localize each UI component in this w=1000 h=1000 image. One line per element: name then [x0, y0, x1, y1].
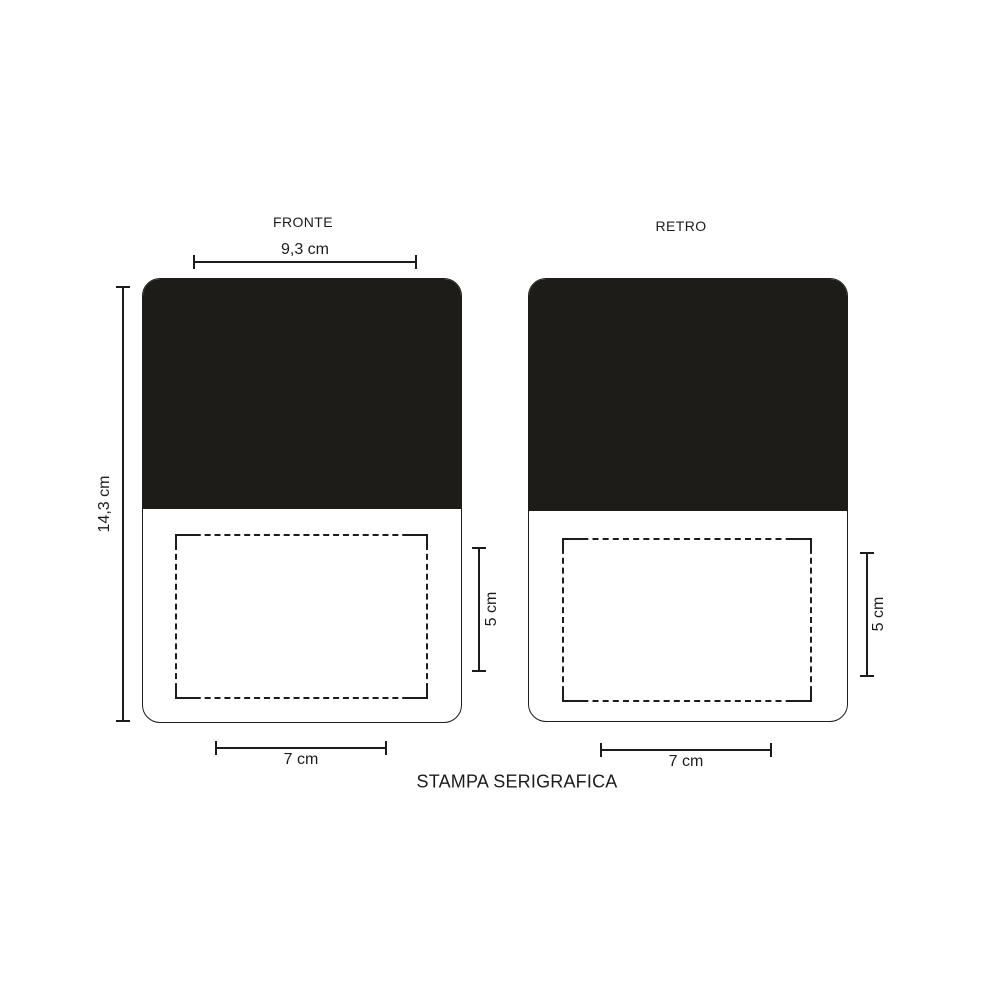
front-overall-height-dimension-line: [116, 286, 130, 722]
crop-corner-icon: [790, 688, 812, 702]
back-print-width-label: 7 cm: [669, 753, 704, 771]
dimension-line: [600, 749, 772, 751]
crop-corner-icon: [175, 685, 197, 699]
front-card-outline: [142, 278, 462, 723]
dimension-tick: [116, 720, 130, 722]
dimension-tick: [770, 743, 772, 757]
front-print-width-label: 7 cm: [284, 751, 319, 769]
print-technique-label: STAMPA SERIGRAFICA: [417, 772, 618, 793]
back-print-area: [562, 538, 812, 702]
dimension-tick: [415, 255, 417, 269]
dimension-tick: [472, 670, 486, 672]
crop-corner-icon: [175, 534, 197, 548]
dimension-line: [478, 547, 480, 672]
print-spec-sheet: FRONTE 9,3 cm 14,3 cm 5 cm 7 cm R: [0, 0, 1000, 1000]
front-overall-height-label: 14,3 cm: [96, 476, 114, 533]
crop-corner-icon: [406, 685, 428, 699]
crop-corner-icon: [406, 534, 428, 548]
back-black-print-zone: [528, 278, 848, 511]
front-overall-width-dimension-line: [193, 255, 417, 269]
dimension-line: [215, 747, 387, 749]
front-view-title: FRONTE: [273, 214, 333, 230]
crop-corner-icon: [562, 538, 584, 552]
dimension-line: [866, 552, 868, 677]
crop-corner-icon: [790, 538, 812, 552]
dimension-tick: [860, 675, 874, 677]
dimension-line: [122, 286, 124, 722]
front-black-print-zone: [142, 278, 462, 509]
back-card-outline: [528, 278, 848, 722]
crop-corner-icon: [562, 688, 584, 702]
back-print-height-label: 5 cm: [870, 597, 888, 632]
back-view-title: RETRO: [656, 218, 707, 234]
front-print-area: [175, 534, 428, 699]
dimension-line: [193, 261, 417, 263]
front-print-height-label: 5 cm: [483, 592, 501, 627]
dimension-tick: [385, 741, 387, 755]
